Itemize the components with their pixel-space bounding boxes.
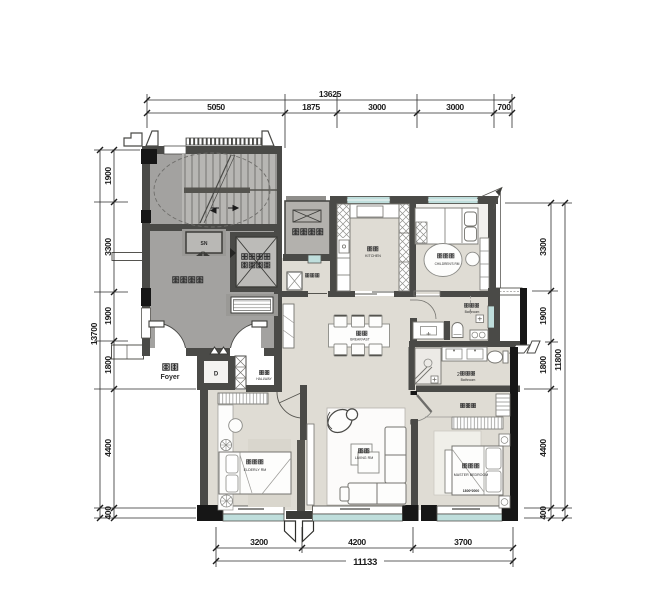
svg-text:1875: 1875 <box>302 102 320 112</box>
svg-text:HALLWAY: HALLWAY <box>256 377 272 381</box>
svg-text:1800*2000: 1800*2000 <box>463 489 480 493</box>
svg-text:CHILDREN'S RM: CHILDREN'S RM <box>435 262 460 266</box>
svg-text:3000: 3000 <box>368 102 386 112</box>
svg-text:3000: 3000 <box>446 102 464 112</box>
svg-text:3200: 3200 <box>250 537 268 547</box>
svg-text:1900: 1900 <box>103 167 113 185</box>
svg-text:LIVING RM: LIVING RM <box>355 456 373 460</box>
svg-text:5050: 5050 <box>207 102 225 112</box>
svg-text:400: 400 <box>538 506 548 520</box>
svg-text:2: 2 <box>457 372 460 378</box>
svg-text:4200: 4200 <box>348 537 366 547</box>
svg-text:4400: 4400 <box>103 439 113 457</box>
svg-text:D: D <box>214 372 219 378</box>
svg-text:Bathroom: Bathroom <box>465 310 480 314</box>
svg-text:SN: SN <box>201 241 208 247</box>
svg-text:1800: 1800 <box>103 356 113 374</box>
svg-text:1900: 1900 <box>103 307 113 325</box>
svg-text:4400: 4400 <box>538 439 548 457</box>
svg-text:BREAKFAST: BREAKFAST <box>350 338 369 342</box>
svg-text:11800: 11800 <box>553 349 563 371</box>
svg-text:400: 400 <box>103 506 113 520</box>
svg-text:Foyer: Foyer <box>160 374 179 381</box>
svg-text:3300: 3300 <box>103 238 113 256</box>
svg-text:1800: 1800 <box>538 356 548 374</box>
svg-text:13625: 13625 <box>319 89 342 99</box>
svg-text:1900: 1900 <box>538 307 548 325</box>
svg-text:13700: 13700 <box>89 322 99 345</box>
svg-text:Bathroom: Bathroom <box>461 378 476 382</box>
svg-text:KITCHEN: KITCHEN <box>365 254 381 258</box>
svg-text:11133: 11133 <box>353 557 377 568</box>
svg-text:MASTER BEDROOM: MASTER BEDROOM <box>454 473 489 477</box>
svg-text:700: 700 <box>497 102 511 112</box>
svg-text:3300: 3300 <box>538 238 548 256</box>
svg-text:ELDERLY RM: ELDERLY RM <box>244 468 267 472</box>
svg-text:3700: 3700 <box>454 537 472 547</box>
